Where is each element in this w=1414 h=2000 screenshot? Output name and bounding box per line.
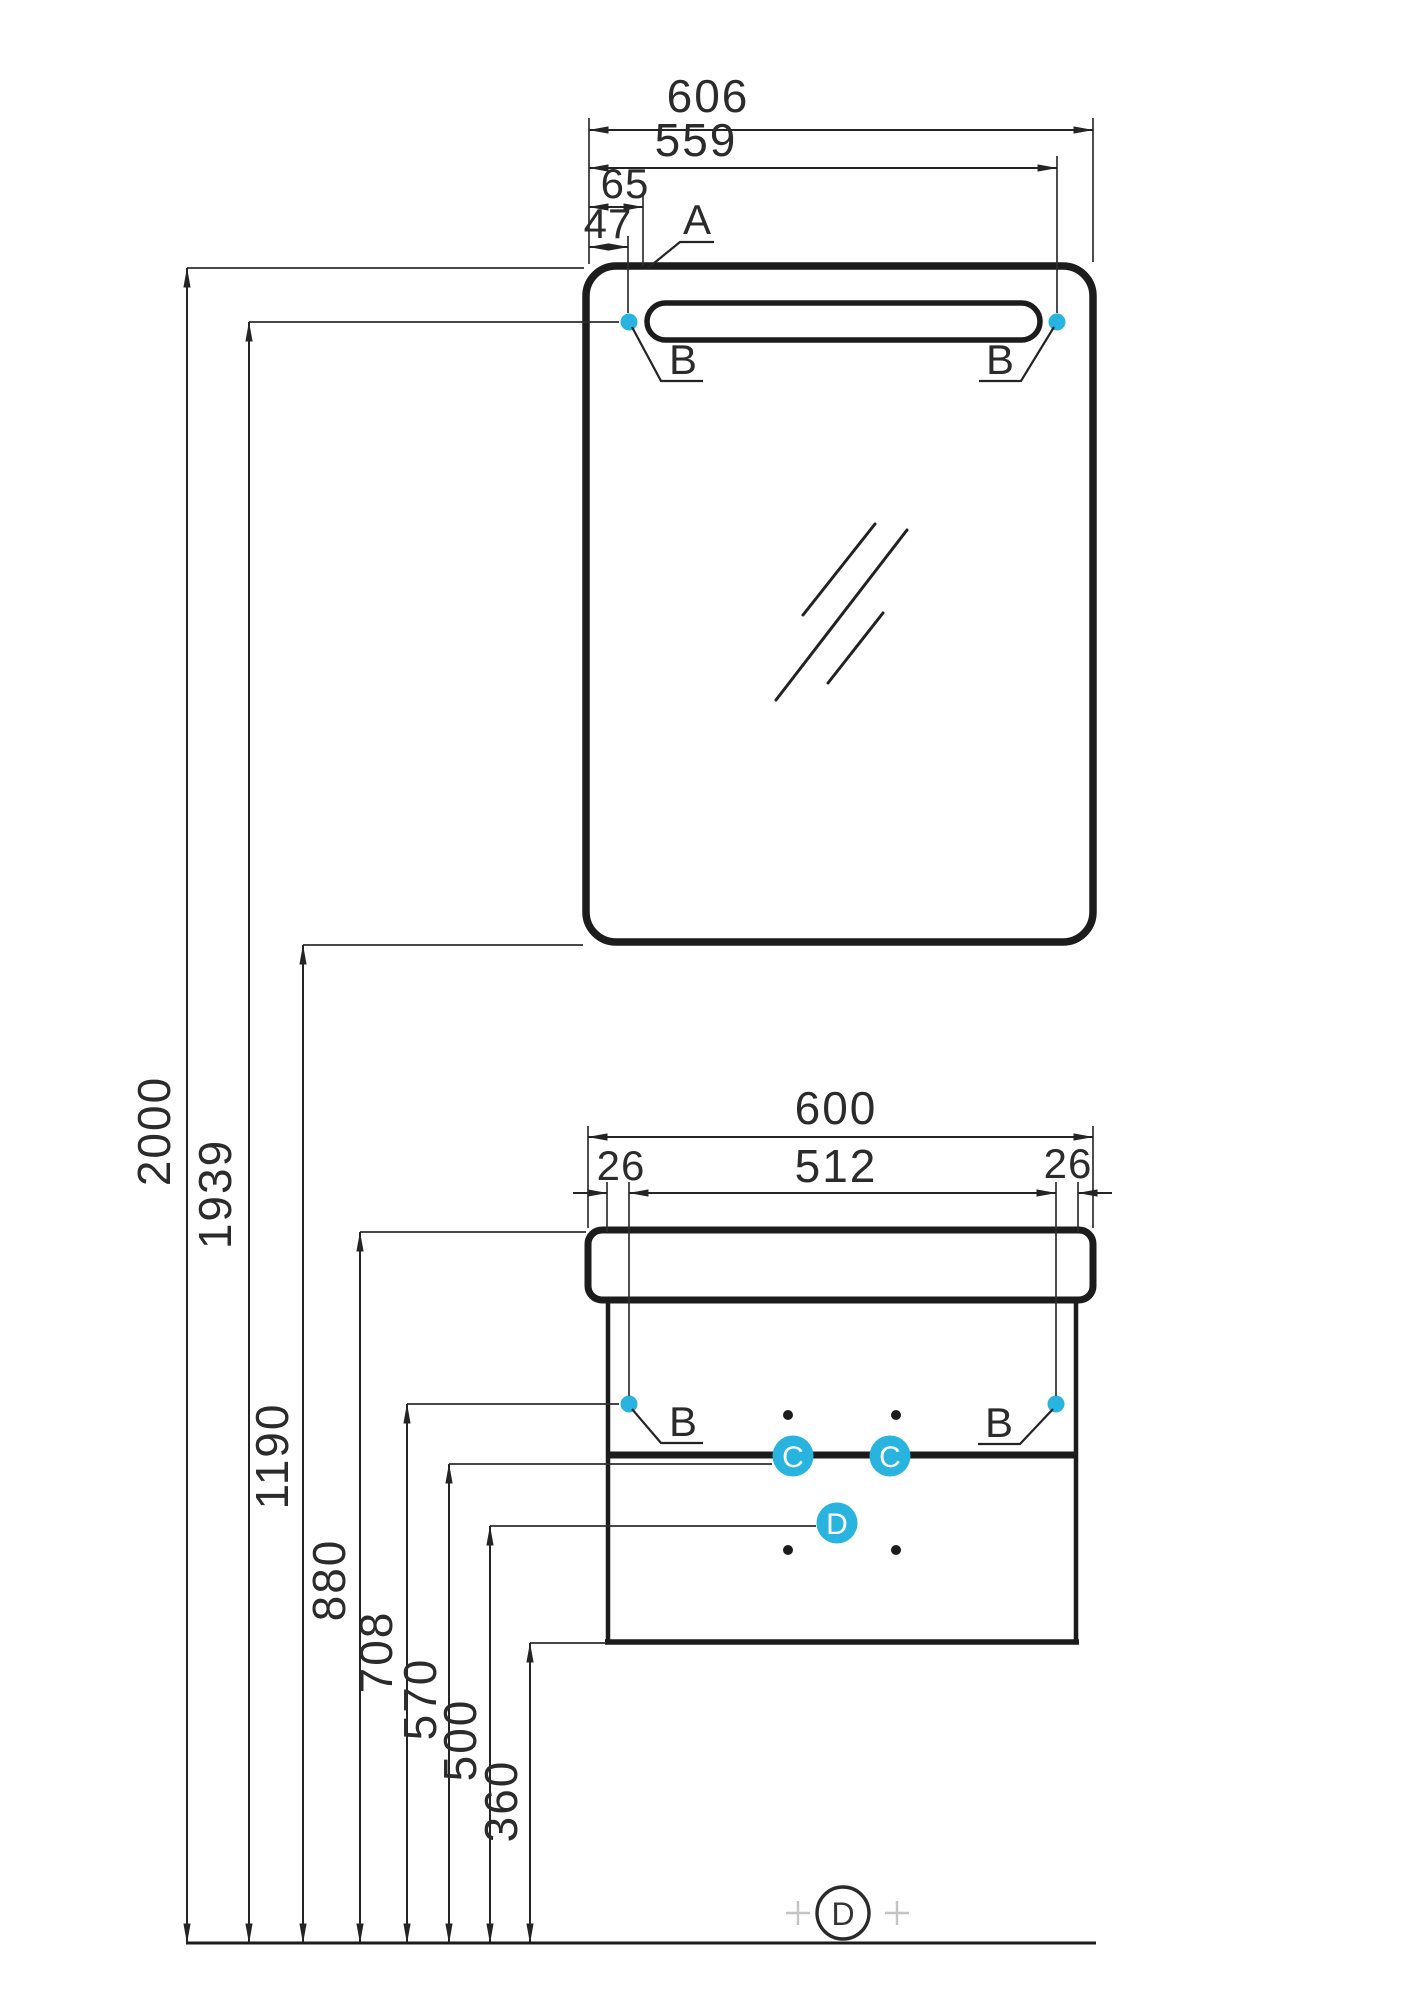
- dim-height-2000: 2000: [128, 1076, 180, 1186]
- mirror-reflection-marks: [776, 524, 907, 700]
- callout-b-mirror-left: B: [632, 327, 703, 383]
- callout-b-label: B: [669, 336, 697, 383]
- dim-mirror-fixing-559: 559: [655, 114, 738, 166]
- cabinet-dimensions: 600 512 26 26: [573, 1082, 1112, 1396]
- callout-b-label: B: [669, 1398, 697, 1445]
- mirror-dimensions: 606 559 65 47: [584, 70, 1093, 313]
- drawer-hole-top-right: [891, 1410, 901, 1420]
- fixing-point-b-cabinet-right: [1048, 1396, 1065, 1413]
- mirror-light-strip: [647, 303, 1040, 340]
- badge-c-right: C: [870, 1436, 911, 1477]
- svg-text:C: C: [879, 1441, 901, 1474]
- callout-a: A: [648, 196, 714, 268]
- cabinet-countertop: [588, 1230, 1093, 1300]
- dim-height-880: 880: [303, 1539, 355, 1622]
- cabinet-front-view: C C D: [588, 1230, 1093, 1642]
- svg-text:D: D: [826, 1508, 848, 1541]
- technical-drawing-page: 606 559 65 47 A B B C: [0, 0, 1414, 2000]
- dim-cabinet-26-right: 26: [1044, 1140, 1093, 1187]
- callout-b-cabinet-left: B: [632, 1398, 703, 1445]
- fixing-point-b-mirror-right: [1049, 314, 1066, 331]
- fixing-point-b-mirror-left: [621, 314, 638, 331]
- dim-height-1190: 1190: [246, 1403, 298, 1510]
- dim-mirror-47: 47: [584, 200, 633, 247]
- dim-cabinet-width: 600: [795, 1082, 878, 1134]
- callout-b-label: B: [985, 1399, 1013, 1446]
- drawing-canvas: 606 559 65 47 A B B C: [0, 0, 1414, 2000]
- callout-b-label: B: [986, 336, 1014, 383]
- dim-height-1939: 1939: [189, 1139, 241, 1249]
- datum-d-marker: D: [786, 1887, 909, 1939]
- drawer-hole-bottom-right: [891, 1545, 901, 1555]
- crosshair-right-icon: [885, 1901, 909, 1925]
- crosshair-left-icon: [786, 1901, 810, 1925]
- dim-cabinet-512: 512: [795, 1140, 878, 1192]
- mirror-frame: [586, 266, 1093, 942]
- mirror-front-view: [586, 266, 1093, 942]
- callout-a-label: A: [683, 196, 711, 243]
- badge-c-left: C: [773, 1436, 814, 1477]
- drawer-hole-top-left: [783, 1410, 793, 1420]
- fixing-point-b-cabinet-left: [621, 1396, 638, 1413]
- datum-d-label: D: [831, 1896, 854, 1932]
- badge-d: D: [817, 1503, 858, 1544]
- callout-b-cabinet-right: B: [978, 1399, 1053, 1446]
- callout-b-mirror-right: B: [979, 327, 1054, 383]
- vertical-dimensions: 2000 1939 1190 880 708 570 500 360: [128, 268, 816, 1943]
- dim-height-360: 360: [475, 1760, 527, 1843]
- dim-cabinet-26-left: 26: [597, 1142, 646, 1189]
- drawer-hole-bottom-left: [783, 1545, 793, 1555]
- svg-text:C: C: [782, 1441, 804, 1474]
